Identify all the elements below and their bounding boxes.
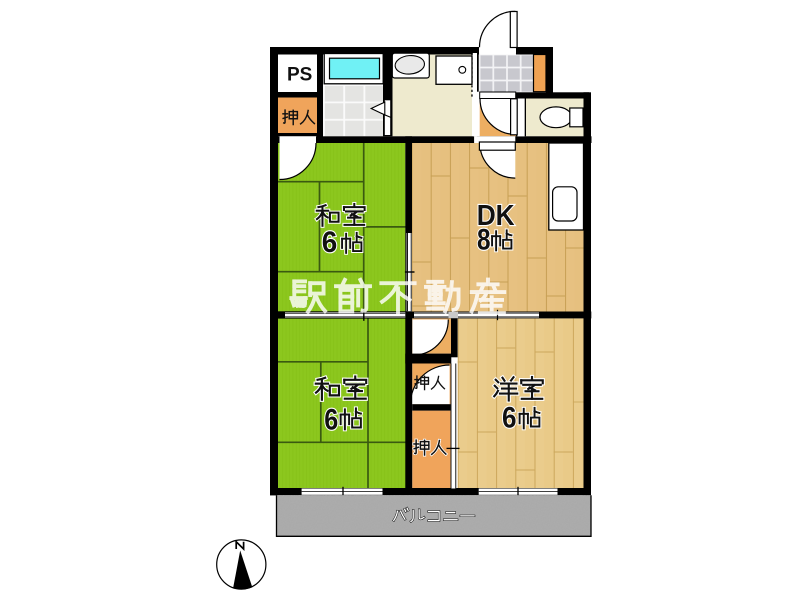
svg-text:PS: PS [287,65,312,86]
svg-text:6: 6 [324,404,338,437]
svg-text:6: 6 [322,226,338,259]
svg-text:6: 6 [502,402,517,435]
svg-text:DK: DK [477,200,515,232]
